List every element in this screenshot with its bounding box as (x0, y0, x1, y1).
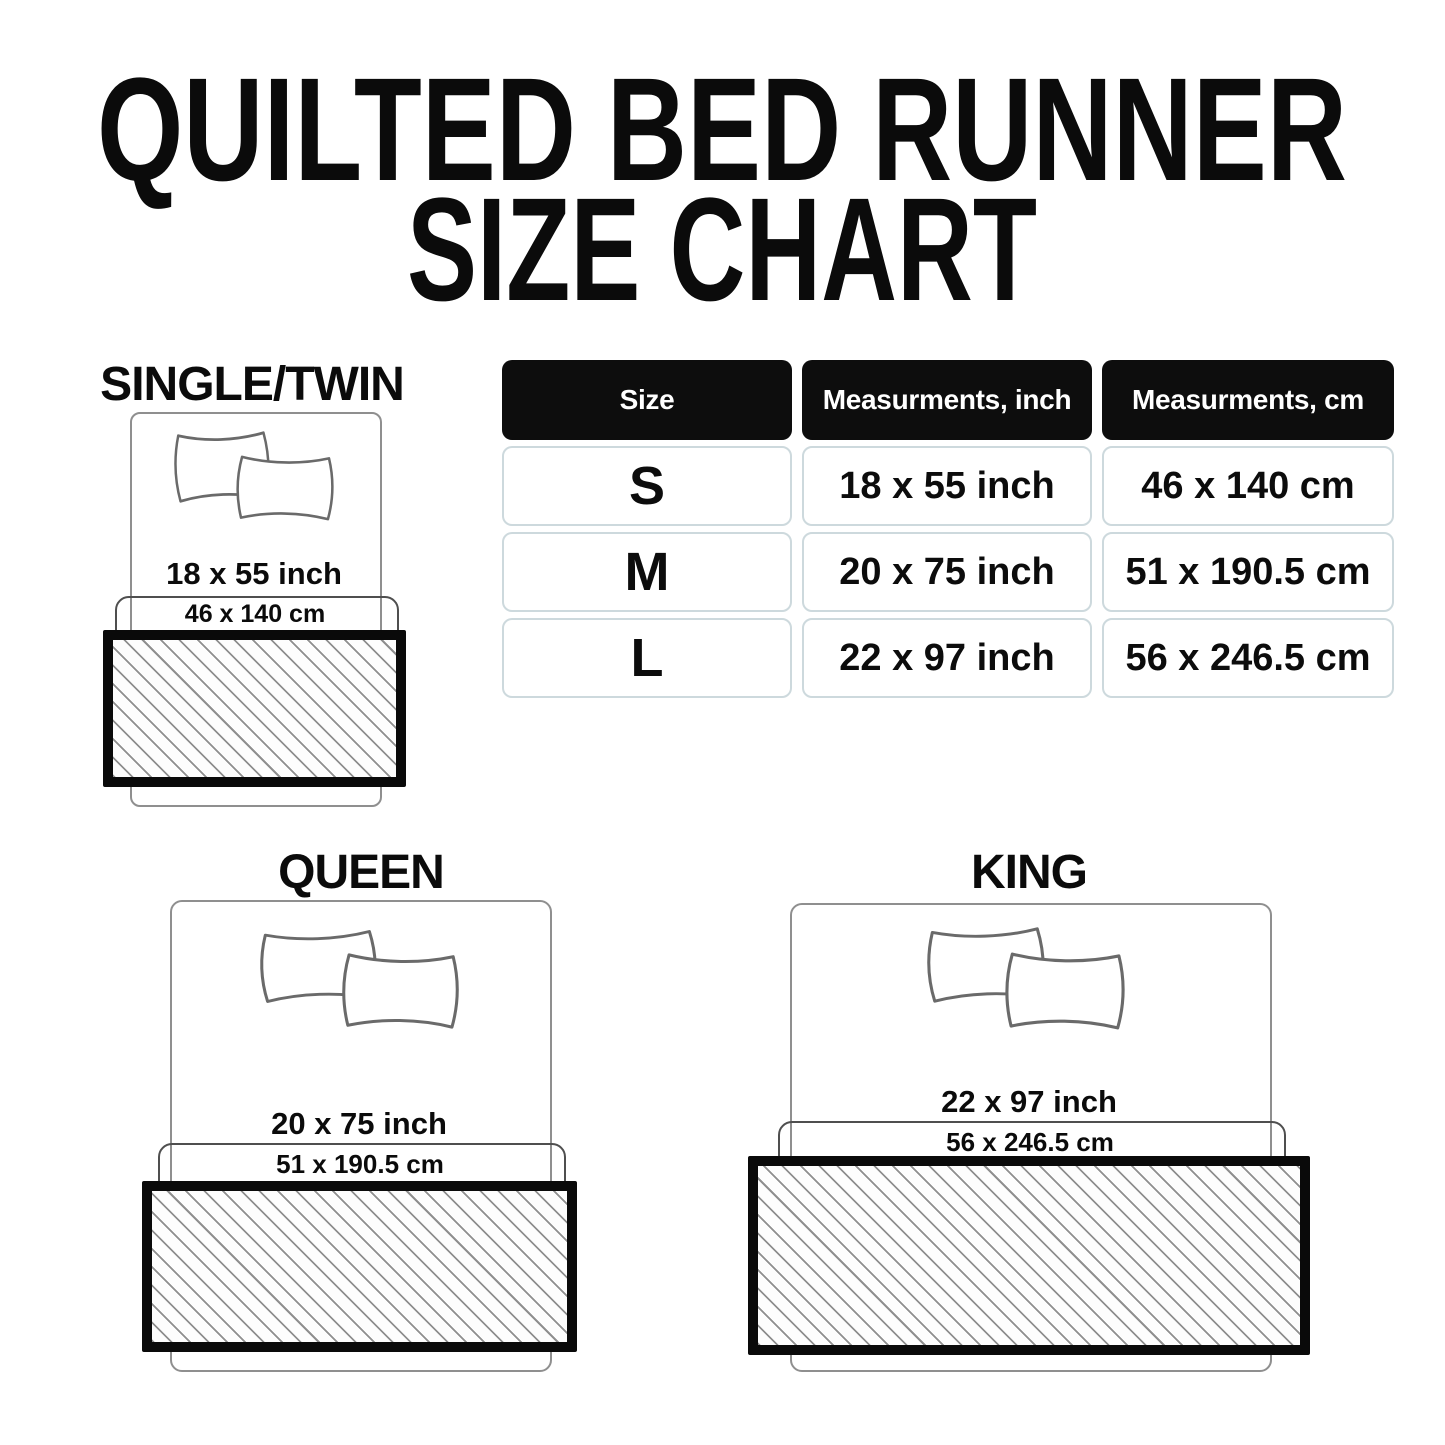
pillow-icon (999, 945, 1131, 1037)
single-twin-label: SINGLE/TWIN (92, 357, 412, 412)
table-cell-s-inch: 18 x 55 inch (802, 446, 1092, 526)
single-cm-dimension: 46 x 140 cm (115, 600, 395, 629)
queen-cm-dimension: 51 x 190.5 cm (158, 1149, 562, 1180)
queen-label: QUEEN (211, 845, 511, 900)
page-title: QUILTED BED RUNNER SIZE CHART (0, 0, 1445, 320)
size-table: Size Measurments, inch Measurments, cm S… (502, 360, 1394, 698)
table-header-size: Size (502, 360, 792, 440)
king-inch-dimension: 22 x 97 inch (790, 1084, 1268, 1120)
table-header-cm: Measurments, cm (1102, 360, 1394, 440)
size-chart-page: QUILTED BED RUNNER SIZE CHART Size Measu… (0, 0, 1445, 1445)
table-cell-m-inch: 20 x 75 inch (802, 532, 1092, 612)
table-cell-m-cm: 51 x 190.5 cm (1102, 532, 1394, 612)
table-header-inch: Measurments, inch (802, 360, 1092, 440)
queen-inch-dimension: 20 x 75 inch (170, 1106, 548, 1142)
pillow-icon (231, 449, 338, 527)
table-cell-m-size: M (502, 532, 792, 612)
table-cell-s-size: S (502, 446, 792, 526)
table-cell-l-inch: 22 x 97 inch (802, 618, 1092, 698)
single-inch-dimension: 18 x 55 inch (130, 556, 378, 592)
king-bed-runner-swatch (748, 1156, 1310, 1355)
page-title-line2: SIZE CHART (407, 168, 1037, 320)
table-cell-l-cm: 56 x 246.5 cm (1102, 618, 1394, 698)
pillow-icon (336, 946, 465, 1036)
king-label: KING (879, 845, 1179, 900)
single-bed-runner-swatch (103, 630, 406, 787)
table-cell-s-cm: 46 x 140 cm (1102, 446, 1394, 526)
queen-bed-runner-swatch (142, 1181, 577, 1352)
table-cell-l-size: L (502, 618, 792, 698)
king-cm-dimension: 56 x 246.5 cm (778, 1127, 1282, 1158)
